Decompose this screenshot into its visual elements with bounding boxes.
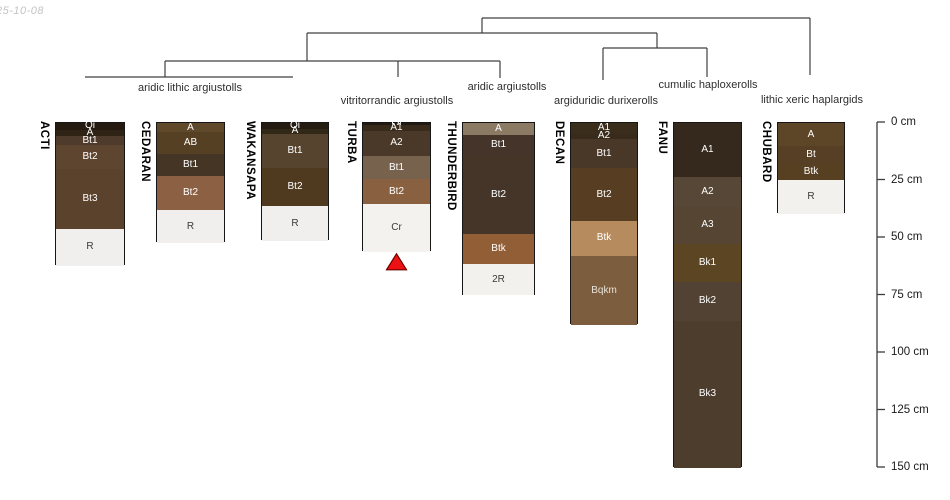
horizon-label: Bk1 (699, 258, 716, 268)
horizon-label: Bt2 (287, 182, 302, 192)
horizon-label: Bt2 (596, 190, 611, 200)
profile-id-turba: TURBA (345, 121, 357, 164)
horizon-label: A2 (390, 138, 402, 148)
profile-id-acti: ACTI (38, 121, 50, 150)
depth-tick-label: 50 cm (891, 231, 922, 243)
horizon-label: Cr (391, 223, 402, 233)
profile-id-decan: DECAN (553, 121, 565, 164)
horizon-label: Bt1 (287, 146, 302, 156)
red-triangle-marker (387, 254, 407, 270)
horizon-label: A (187, 123, 194, 133)
taxon-group-label: lithic xeric haplargids (761, 94, 863, 106)
profile-column-decan: A1A2Bt1Bt2BtkBqkm (570, 122, 638, 324)
horizon-label: 2R (492, 275, 505, 285)
depth-tick-label: 25 cm (891, 174, 922, 186)
profile-id-thunderbird: THUNDERBIRD (445, 121, 457, 211)
horizon-label: A3 (701, 220, 713, 230)
horizon-label: Bt2 (389, 187, 404, 197)
horizon-label: Btk (804, 167, 818, 177)
horizon-label: R (291, 219, 298, 229)
horizon-label: A2 (701, 187, 713, 197)
profile-column-chubard: ABtBtkR (777, 122, 845, 213)
taxon-group-label: cumulic haploxerolls (658, 79, 757, 91)
horizon-label: Bt1 (491, 140, 506, 150)
horizon-label: Bt1 (82, 136, 97, 146)
horizon-label: R (807, 192, 814, 202)
horizon-label: A (495, 124, 502, 134)
horizon-label: Bt1 (596, 149, 611, 159)
horizon-label: R (187, 222, 194, 232)
horizon-label: Bt2 (491, 190, 506, 200)
profile-id-wakansapa: WAKANSAPA (244, 121, 256, 200)
profile-column-acti: OiABt1Bt2Bt3R (55, 122, 125, 265)
profile-column-turba: OiA1A2Bt1Bt2Cr (362, 122, 431, 251)
profile-id-chubard: CHUBARD (760, 121, 772, 183)
depth-tick-label: 125 cm (891, 404, 929, 416)
taxon-group-label: aridic lithic argiustolls (138, 82, 242, 94)
horizon-label: Bqkm (591, 286, 617, 296)
profile-column-wakansapa: OiABt1Bt2R (261, 122, 329, 240)
profile-column-thunderbird: ABt1Bt2Btk2R (462, 122, 535, 295)
horizon-label: A1 (701, 145, 713, 155)
timestamp-label: 25-10-08 (0, 5, 44, 17)
profile-column-fanu: A1A2A3Bk1Bk2Bk3 (673, 122, 742, 467)
soil-profile-dendrogram-figure: 25-10-08 aridic lithic argiustollsvitrit… (0, 0, 950, 500)
horizon-label: Btk (597, 233, 611, 243)
horizon-label: A (808, 130, 815, 140)
horizon-label: Bt1 (389, 163, 404, 173)
profile-id-cedaran: CEDARAN (139, 121, 151, 182)
depth-tick-label: 75 cm (891, 289, 922, 301)
horizon-label: Bt2 (183, 188, 198, 198)
horizon-label: Bt1 (183, 160, 198, 170)
horizon-label: Bk2 (699, 296, 716, 306)
depth-tick-label: 150 cm (891, 461, 929, 473)
depth-tick-label: 0 cm (891, 116, 916, 128)
horizon-label: Btk (491, 244, 505, 254)
horizon-label: AB (184, 138, 197, 148)
profile-id-fanu: FANU (656, 121, 668, 154)
profile-column-cedaran: AABBt1Bt2R (156, 122, 225, 242)
horizon-label: Bt3 (82, 194, 97, 204)
taxon-group-label: argiduridic durixerolls (554, 95, 658, 107)
depth-tick-label: 100 cm (891, 346, 929, 358)
horizon-label: Bk3 (699, 389, 716, 399)
horizon-label: R (86, 242, 93, 252)
taxon-group-label: aridic argiustolls (468, 81, 547, 93)
horizon-label: Bt2 (82, 152, 97, 162)
taxon-group-label: vitritorrandic argiustolls (341, 95, 453, 107)
horizon-label: Bt (806, 150, 815, 160)
